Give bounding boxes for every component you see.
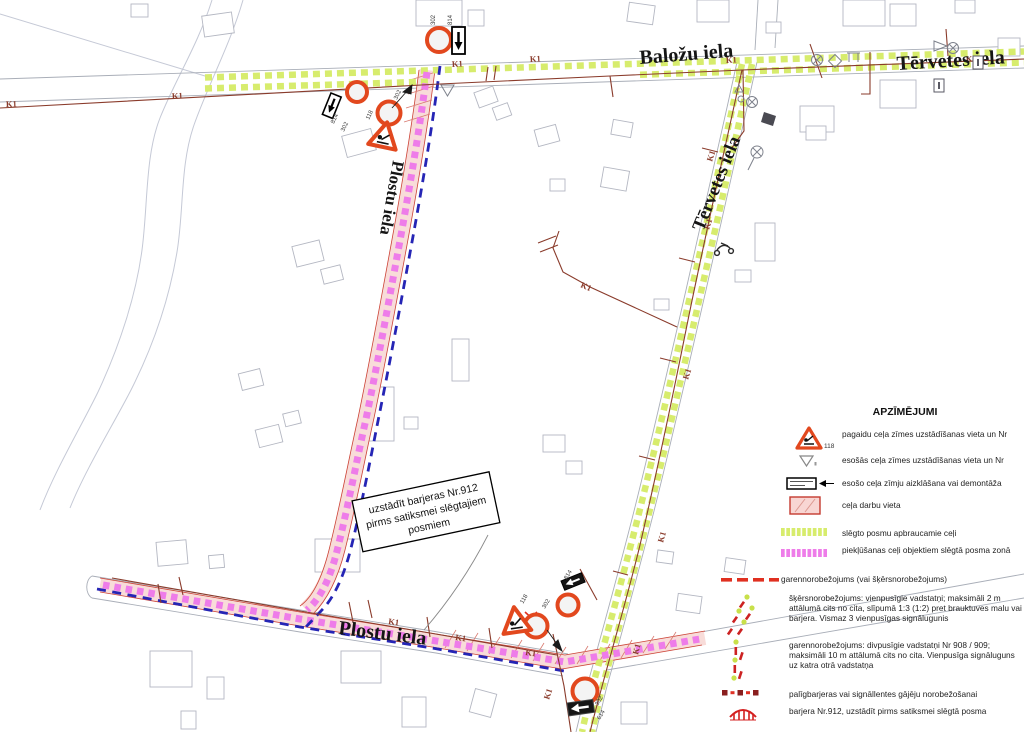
work-zone-bands xyxy=(100,70,705,662)
direction-sign-814 xyxy=(452,27,465,54)
street-balozu-iela: Baložu iela xyxy=(639,40,734,69)
svg-text:302: 302 xyxy=(431,14,437,25)
svg-text:K1: K1 xyxy=(452,58,463,69)
site-plan-map: K1 K1 K1 K1 K1 K1 K1 K1 K1 K1 K1 K1 K1 K… xyxy=(0,0,1024,732)
dark-panel-icon xyxy=(761,112,776,126)
direction-sign-614 xyxy=(567,699,595,715)
svg-text:302: 302 xyxy=(340,121,350,133)
svg-text:K1: K1 xyxy=(6,99,17,109)
svg-text:K1: K1 xyxy=(525,647,537,658)
svg-text:K1: K1 xyxy=(455,632,467,643)
traffic-plan-page: K1 K1 K1 K1 K1 K1 K1 K1 K1 K1 K1 K1 K1 K… xyxy=(0,0,1024,732)
small-square-sign-icon xyxy=(973,56,983,69)
note-box: uzstādīt barjeras Nr.912 pirms satiksmei… xyxy=(352,472,500,630)
svg-text:K1: K1 xyxy=(172,90,183,101)
svg-text:814: 814 xyxy=(448,14,454,25)
svg-text:K1: K1 xyxy=(541,687,554,700)
crossed-circle-icon xyxy=(748,146,763,170)
svg-text:118: 118 xyxy=(520,593,530,605)
svg-text:K1: K1 xyxy=(579,280,593,293)
work-zone-borders xyxy=(100,70,705,669)
direction-sign-814 xyxy=(322,93,341,118)
svg-text:K1: K1 xyxy=(680,367,693,380)
note-leader-line xyxy=(424,535,488,630)
svg-text:302: 302 xyxy=(542,598,553,610)
svg-text:K1: K1 xyxy=(655,530,668,543)
work-zone-hatching xyxy=(404,72,676,664)
svg-text:K1: K1 xyxy=(530,53,541,64)
small-square-sign-icon xyxy=(934,79,944,92)
moped-glyph-icon xyxy=(715,243,734,255)
svg-text:118: 118 xyxy=(365,109,375,121)
svg-text:302: 302 xyxy=(393,89,403,101)
